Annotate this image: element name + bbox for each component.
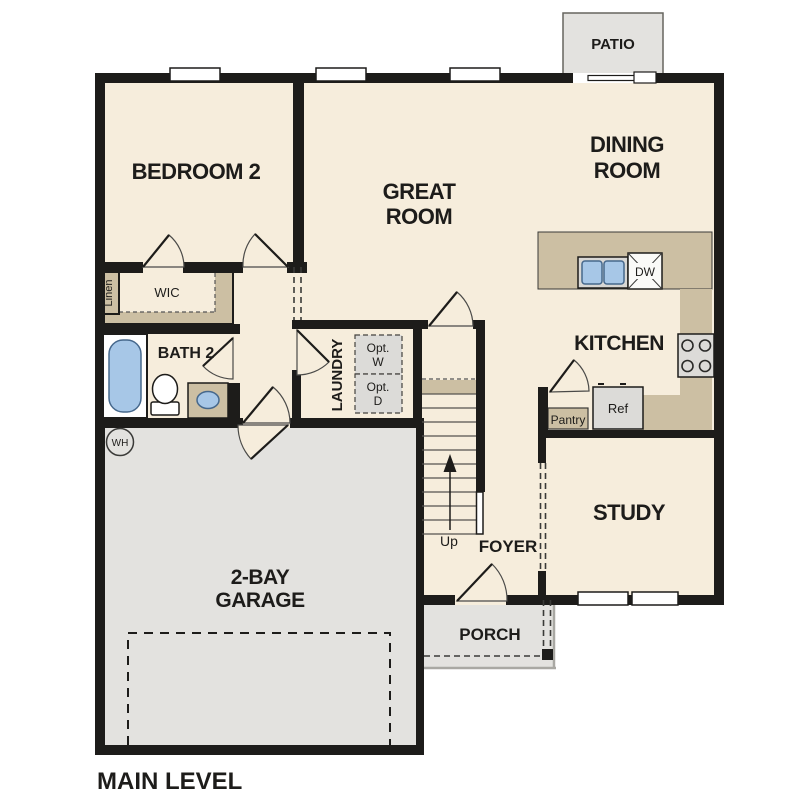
kitchen-label: KITCHEN <box>574 332 664 355</box>
great-room-label-1: GREAT <box>383 179 457 204</box>
window-great-room-2 <box>450 68 500 81</box>
window-study-2 <box>632 592 678 605</box>
laundry-label: LAUNDRY <box>329 339 346 412</box>
vanity-sink <box>197 392 219 409</box>
wh-label: WH <box>112 438 129 449</box>
dw-label: DW <box>635 265 656 279</box>
foyer-label: FOYER <box>479 537 538 556</box>
kitchen-counter-lower <box>643 395 712 430</box>
floor-plan-page: BEDROOM 2 GREAT ROOM DINING ROOM KITCHEN… <box>0 0 810 810</box>
plan-title: MAIN LEVEL <box>97 768 242 795</box>
bath2-label: BATH 2 <box>158 345 215 362</box>
great-room-label-2: ROOM <box>386 204 452 229</box>
bedroom2-label: BEDROOM 2 <box>132 159 261 184</box>
patio-label: PATIO <box>591 36 635 53</box>
stair-rail <box>477 492 484 534</box>
stove <box>678 334 714 377</box>
sink-basin-left <box>582 261 602 284</box>
porch-label: PORCH <box>459 625 520 644</box>
opt-dryer-label-1: Opt. <box>367 380 390 394</box>
ref-label: Ref <box>608 401 629 416</box>
dining-room-label-1: DINING <box>590 132 664 157</box>
garage-label-2: GARAGE <box>215 589 305 612</box>
window-bedroom2 <box>170 68 220 81</box>
up-label: Up <box>440 533 458 549</box>
stair-landing <box>422 380 476 394</box>
pantry-label: Pantry <box>551 413 586 427</box>
opt-washer-label-1: Opt. <box>367 341 390 355</box>
opt-dryer-label-2: D <box>374 394 383 408</box>
floor-areas <box>95 13 724 745</box>
window-great-room-1 <box>316 68 366 81</box>
linen-label: Linen <box>103 280 115 307</box>
dining-room-label-2: ROOM <box>594 158 660 183</box>
wic-label: WIC <box>154 285 179 300</box>
window-study-1 <box>578 592 628 605</box>
garage-label-1: 2-BAY <box>231 566 290 589</box>
floor-plan: BEDROOM 2 GREAT ROOM DINING ROOM KITCHEN… <box>0 0 810 810</box>
opt-washer-label-2: W <box>372 355 384 369</box>
patio-slider-door <box>573 72 656 83</box>
bathtub <box>109 340 141 412</box>
porch-column <box>542 649 553 660</box>
toilet-bowl <box>153 375 178 404</box>
sink-basin-right <box>604 261 624 284</box>
study-label: STUDY <box>593 500 666 525</box>
